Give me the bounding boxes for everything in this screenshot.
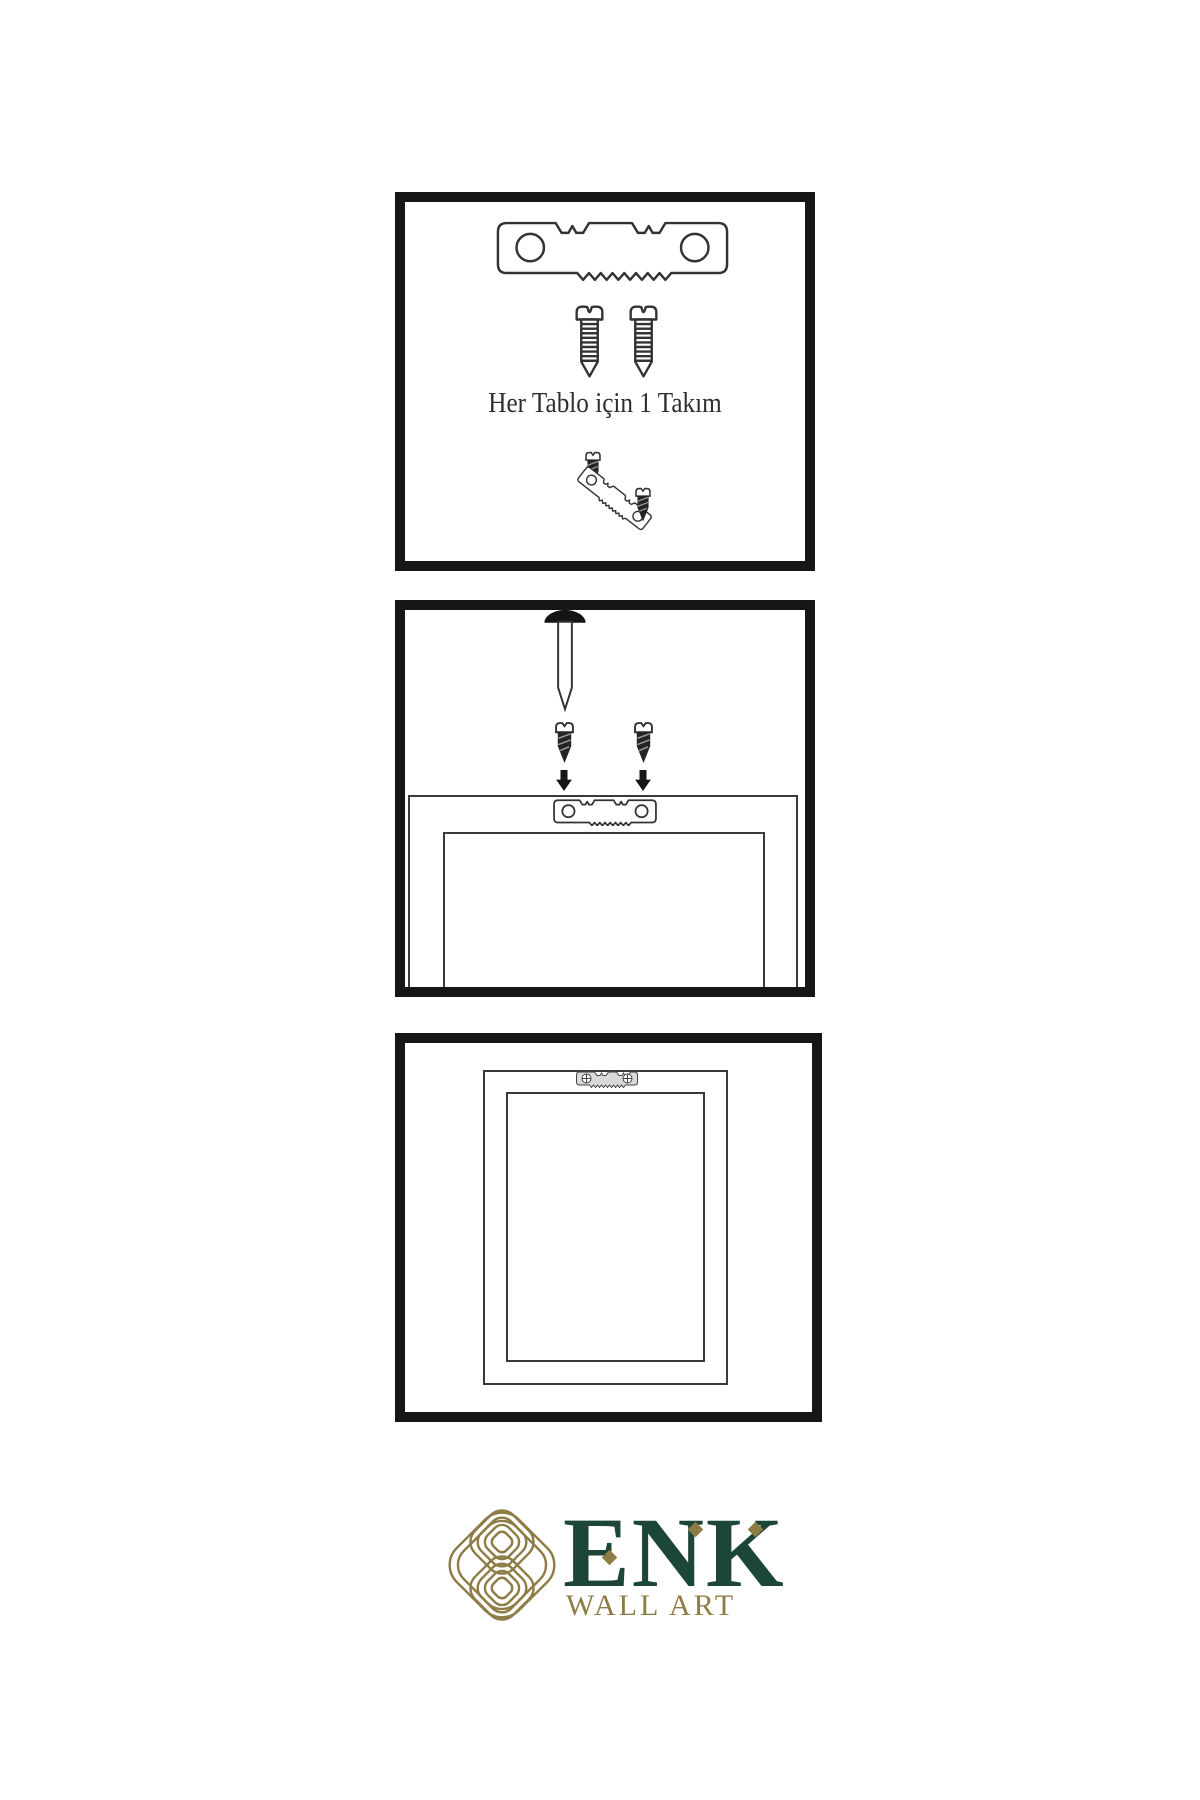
screw-icon	[573, 303, 606, 380]
screw-icon	[627, 303, 660, 380]
mounted-hanger-icon	[575, 1071, 639, 1088]
instruction-sheet: Her Tablo için 1 Takım	[0, 0, 1200, 1800]
frame-hanger-icon	[552, 799, 658, 826]
hardware-kit-panel: Her Tablo için 1 Takım	[395, 192, 815, 571]
kit-caption: Her Tablo için 1 Takım	[425, 388, 785, 420]
wall-nail-icon	[542, 609, 588, 719]
sawtooth-hanger-icon	[495, 220, 730, 281]
wall-mount-panel	[395, 600, 815, 997]
knot-logo-icon	[440, 1498, 565, 1632]
frame-inner	[506, 1092, 705, 1362]
kit-demo-group	[575, 448, 670, 553]
brand-name: ENK	[563, 1503, 823, 1603]
brand-subtitle: WALL ART	[566, 1591, 826, 1621]
dark-screw-icon	[553, 720, 576, 766]
down-arrow-icon	[635, 770, 651, 791]
dark-screw-icon	[633, 486, 653, 524]
hung-frame-panel	[395, 1033, 822, 1422]
dark-screw-icon	[632, 720, 655, 766]
down-arrow-icon	[556, 770, 572, 791]
frame-back-inner	[443, 832, 765, 997]
